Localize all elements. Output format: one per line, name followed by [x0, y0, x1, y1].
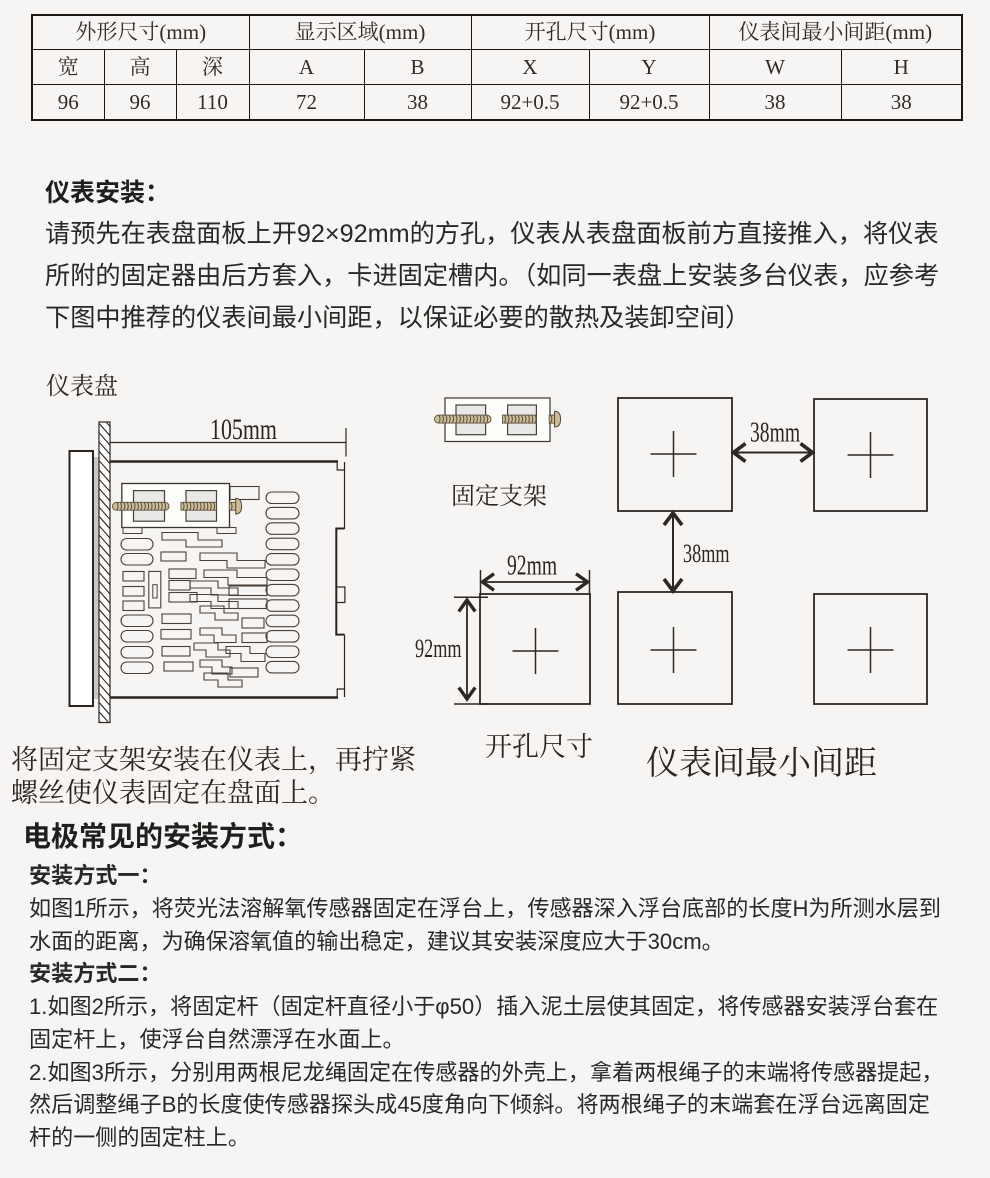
svg-text:92mm: 92mm: [415, 634, 462, 663]
svg-text:38mm: 38mm: [683, 539, 730, 568]
svg-text:38mm: 38mm: [750, 417, 800, 448]
svg-text:92mm: 92mm: [507, 550, 557, 581]
svg-text:105mm: 105mm: [210, 413, 277, 446]
